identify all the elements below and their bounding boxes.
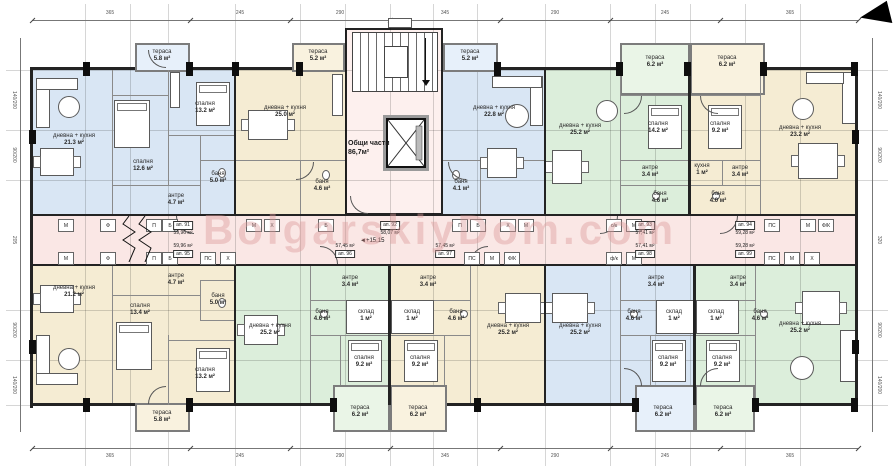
room-label: антре3.4 м²: [732, 165, 748, 179]
room-label: спалня13.4 м²: [130, 303, 150, 317]
room-label: дневна + кухня25.2 м²: [487, 323, 529, 337]
dimension-text: 290: [551, 453, 559, 459]
unit-tag: 57,45 м²ап. 96: [335, 243, 355, 258]
bed: [116, 322, 152, 370]
dimension-text: 245: [236, 10, 244, 16]
counter-box: М: [246, 219, 262, 232]
wall-break-icon: [138, 216, 152, 262]
stair-arrow-head: [422, 80, 430, 86]
room-label: дневна + кухня25.2 м²: [559, 123, 601, 137]
dimension-text: 320: [876, 236, 882, 244]
room-label: спалня13.2 м²: [195, 367, 215, 381]
room-label: дневна + кухня25.2 м²: [249, 323, 291, 337]
dining-table: [40, 148, 74, 176]
core-roof-hatch: [388, 18, 412, 28]
dining-table: [552, 150, 582, 184]
unit-tag: ап. 9357,41 м²: [635, 221, 655, 236]
counter-box: Х: [804, 252, 820, 265]
elevator-shaft: [386, 118, 426, 168]
room-label: антре3.4 м²: [342, 275, 358, 289]
room-label: дневна + кухня23.2 м²: [779, 125, 821, 139]
counter-box: Б: [470, 219, 486, 232]
counter-box: П: [452, 219, 468, 232]
counter-box: М: [800, 219, 816, 232]
axis-line: [800, 4, 801, 466]
stair-arrow: [425, 38, 426, 82]
bed: [114, 100, 150, 148]
wardrobe: [332, 74, 343, 116]
dimension-text: 90/200: [876, 147, 882, 162]
unit-tag: ап. 9159,96 м²: [173, 221, 193, 236]
room-label: спалня12.6 м²: [133, 159, 153, 173]
dimension-text: 290: [336, 10, 344, 16]
dimension-text: 90/200: [11, 322, 17, 337]
counter-box: М: [58, 219, 74, 232]
room-label: дневна + кухня25.0 м²: [264, 105, 306, 119]
dining-table: [552, 293, 588, 323]
counter-box: Ф: [100, 219, 116, 232]
sofa: [840, 330, 856, 382]
floor-plan: М Ф П Б М Х Б П Б Х М о/к М ПС М Ф/К М Ф…: [0, 0, 895, 471]
dimension-text: 140/200: [876, 376, 882, 394]
elevator-x-icon: [388, 120, 424, 166]
room-label: тераса5.2 м²: [308, 49, 327, 63]
room-label: тераса6.2 м²: [717, 55, 736, 69]
north-arrow-icon: [858, 1, 893, 31]
room-label: тераса6.2 м²: [645, 55, 664, 69]
round-table: [58, 96, 80, 118]
room-label: антре3.4 м²: [730, 275, 746, 289]
axis-line: [477, 4, 478, 466]
sofa: [806, 72, 844, 84]
dimension-text: 365: [106, 453, 114, 459]
level-mark: ◄+15,15: [360, 238, 384, 244]
dimension-text: 90/200: [876, 322, 882, 337]
room-label: кухня1 м²: [694, 163, 709, 177]
round-table: [792, 98, 814, 120]
room-label: баня5.0 м²: [210, 293, 226, 307]
sofa: [842, 72, 856, 124]
room-label: спалня9.2 м²: [658, 355, 678, 369]
room-label: дневна + кухня21.2 м²: [53, 285, 95, 299]
counter-box: Ф/К: [818, 219, 834, 232]
unit-tag: 59,96 м²ап. 95: [173, 243, 193, 258]
room-label: антре4.7 м²: [168, 273, 184, 287]
room-label: дневна + кухня25.2 м²: [779, 321, 821, 335]
room-label: баня4.6 м²: [314, 179, 330, 193]
room-label: спалня9.2 м²: [354, 355, 374, 369]
dimension-text: 140/200: [876, 91, 882, 109]
room-label: дневна + кухня21.3 м²: [53, 133, 95, 147]
round-table: [596, 100, 618, 122]
room-label: баня4.6 м²: [314, 309, 330, 323]
dimension-text: 365: [786, 10, 794, 16]
room-label: тераса5.8 м²: [152, 410, 171, 424]
room-label: антре3.4 м²: [642, 165, 658, 179]
room-label: спалня9.2 м²: [410, 355, 430, 369]
dimension-text: 290: [336, 453, 344, 459]
counter-box: ПС: [764, 252, 780, 265]
sofa: [492, 76, 542, 88]
dimension-text: 205: [11, 236, 17, 244]
counter-box: М: [484, 252, 500, 265]
dining-table: [798, 143, 838, 179]
dimension-text: 365: [106, 10, 114, 16]
counter-box: Ф/К: [504, 252, 520, 265]
counter-box: ф/к: [606, 252, 622, 265]
dining-table: [487, 148, 517, 178]
dining-table: [505, 293, 541, 323]
room-label: баня4.0 м²: [710, 191, 726, 205]
dimension-line: [32, 20, 858, 21]
counter-box: М: [58, 252, 74, 265]
dimension-text: 140/200: [11, 91, 17, 109]
dimension-line: [32, 448, 858, 449]
room-label: дневна + кухня25.2 м²: [559, 323, 601, 337]
wall-break-icon: [122, 216, 136, 262]
room-label: тераса5.8 м²: [152, 49, 171, 63]
room-label: склад1 м²: [666, 309, 682, 323]
dimension-text: 245: [661, 10, 669, 16]
room-label: спалня9.2 м²: [712, 355, 732, 369]
room-label: баня4.6 м²: [652, 191, 668, 205]
counter-box: Х: [264, 219, 280, 232]
room-label: баня4.6 м²: [626, 309, 642, 323]
counter-box: Х: [500, 219, 516, 232]
room-label: антре4.7 м²: [168, 193, 184, 207]
dimension-text: 365: [786, 453, 794, 459]
axis-line: [610, 4, 611, 466]
room-label: тераса6.2 м²: [408, 405, 427, 419]
counter-box: Ф: [100, 252, 116, 265]
room-label: склад1 м²: [358, 309, 374, 323]
unit-tag: ап. 9459,28 м²: [735, 221, 755, 236]
dimension-text: 345: [441, 10, 449, 16]
room-label: баня4.6 м²: [752, 309, 768, 323]
dimension-text: 245: [661, 453, 669, 459]
stair-landing: [384, 46, 408, 78]
room-label: спалня14.2 м²: [648, 121, 668, 135]
axis-line: [6, 180, 888, 181]
room-label: тераса6.2 м²: [653, 405, 672, 419]
room-label: тераса6.2 м²: [350, 405, 369, 419]
sofa: [36, 78, 78, 90]
room-label: тераса5.2 м²: [460, 49, 479, 63]
room-label: баня4.1 м²: [453, 179, 469, 193]
unit-tag: 59,28 м²ап. 99: [735, 243, 755, 258]
room-label: антре3.4 м²: [420, 275, 436, 289]
round-table: [58, 348, 80, 370]
apartment-top-cream: [235, 70, 345, 215]
counter-box: ПС: [200, 252, 216, 265]
room-label: дневна + кухня22.8 м²: [473, 105, 515, 119]
wardrobe: [170, 72, 180, 108]
round-table: [790, 356, 814, 380]
unit-tag: 57,41 м²ап. 98: [635, 243, 655, 258]
room-label: баня4.6 м²: [448, 309, 464, 323]
dimension-text: 290: [551, 10, 559, 16]
counter-box: ПС: [464, 252, 480, 265]
dimension-text: 140/200: [11, 376, 17, 394]
counter-box: о/к: [606, 219, 622, 232]
counter-box: Б: [318, 219, 334, 232]
sofa: [36, 373, 78, 385]
room-label: тераса6.2 м²: [713, 405, 732, 419]
common-area-label: Общи части86,7м²: [348, 140, 390, 158]
counter-box: ПС: [764, 219, 780, 232]
dimension-line: [20, 38, 21, 432]
counter-box: Х: [220, 252, 236, 265]
dimension-line: [872, 38, 873, 432]
unit-tag: 57,45 м²ап. 97: [435, 243, 455, 258]
room-label: склад1 м²: [708, 309, 724, 323]
room-label: спалня13.2 м²: [195, 101, 215, 115]
dimension-text: 90/200: [11, 147, 17, 162]
counter-box: М: [518, 219, 534, 232]
room-label: антре3.4 м²: [648, 275, 664, 289]
dimension-text: 245: [236, 453, 244, 459]
room-label: склад1 м²: [404, 309, 420, 323]
room-label: баня5.0 м²: [210, 171, 226, 185]
room-label: спалня9.2 м²: [710, 121, 730, 135]
counter-box: М: [784, 252, 800, 265]
unit-tag: ап. 9258,07 м²: [380, 221, 400, 236]
dimension-text: 345: [441, 453, 449, 459]
